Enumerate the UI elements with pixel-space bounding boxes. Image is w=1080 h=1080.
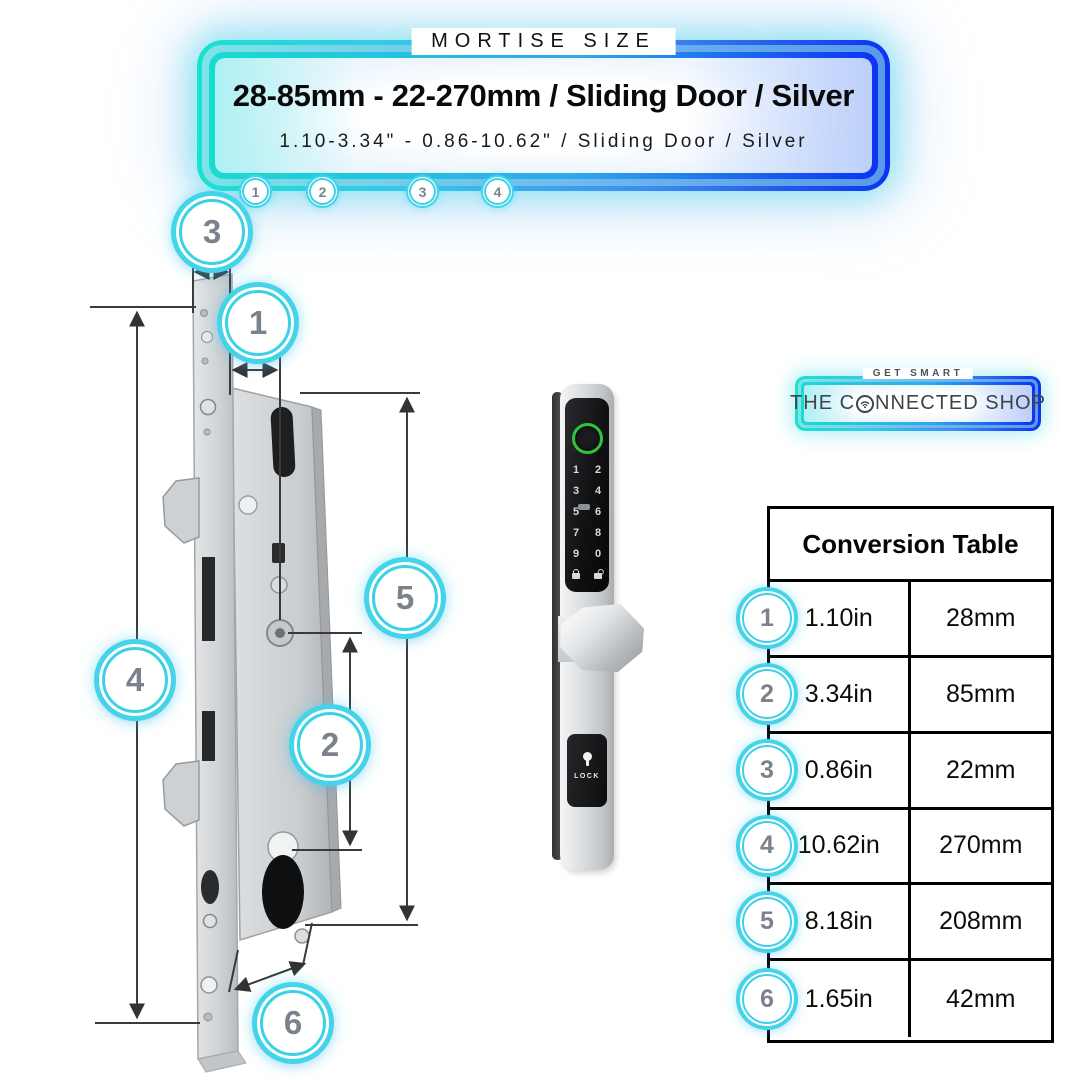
callout-6: 6 bbox=[260, 990, 326, 1056]
key-cover-panel: LOCK bbox=[567, 734, 607, 807]
keypad-icon-row bbox=[565, 568, 609, 579]
mortise-size-banner: MORTISE SIZE 28-85mm - 22-270mm / Slidin… bbox=[197, 40, 890, 191]
hook-slot-lower bbox=[202, 711, 215, 761]
stop-pin bbox=[272, 543, 285, 563]
key-3: 3 bbox=[565, 485, 587, 497]
mortise-lock-diagram: 3 1 5 4 2 6 bbox=[80, 195, 470, 1080]
callout-1: 1 bbox=[225, 290, 291, 356]
logo-frame-fill: THE CNNECTED SHOP bbox=[804, 385, 1032, 422]
mm-cell: 42mm bbox=[911, 961, 1052, 1037]
row-number-badge: 6 bbox=[742, 974, 792, 1024]
product-infographic: MORTISE SIZE 28-85mm - 22-270mm / Slidin… bbox=[0, 0, 1080, 1080]
table-row: 3 0.86in 22mm bbox=[770, 734, 1051, 810]
mm-cell: 85mm bbox=[911, 658, 1052, 731]
latch-slot bbox=[270, 406, 296, 477]
keypad-digits: 1 2 3 4 5 6 7 8 9 0 bbox=[565, 464, 609, 560]
logo-name-suffix: NNECTED SHOP bbox=[875, 392, 1046, 415]
conversion-table-rows: 1 1.10in 28mm 2 3.34in 85mm 3 0.86in 22m… bbox=[770, 582, 1051, 1037]
body-hole bbox=[239, 496, 257, 514]
row-number-badge: 2 bbox=[742, 669, 792, 719]
row-number-badge: 5 bbox=[742, 897, 792, 947]
lock-panel-label: LOCK bbox=[574, 773, 600, 780]
key-4: 4 bbox=[587, 485, 609, 497]
mm-cell: 270mm bbox=[911, 810, 1052, 883]
locked-icon bbox=[572, 573, 580, 579]
callout-5: 5 bbox=[372, 565, 438, 631]
mm-cell: 28mm bbox=[911, 582, 1052, 655]
touch-keypad: 1 2 3 4 5 6 7 8 9 0 bbox=[565, 398, 609, 592]
ok-key bbox=[578, 504, 590, 510]
hook-slot-upper bbox=[202, 557, 215, 641]
spindle-hole bbox=[275, 628, 285, 638]
banner-marker-4: 4 bbox=[484, 178, 511, 205]
logo-name: THE CNNECTED SHOP bbox=[790, 392, 1046, 415]
table-row: 5 8.18in 208mm bbox=[770, 885, 1051, 961]
banner-eyebrow: MORTISE SIZE bbox=[411, 28, 676, 55]
faceplate-slot bbox=[201, 870, 219, 904]
key-7: 7 bbox=[565, 527, 587, 539]
callout-3: 3 bbox=[179, 199, 245, 265]
banner-title: 28-85mm - 22-270mm / Sliding Door / Silv… bbox=[233, 78, 854, 114]
banner-subtitle: 1.10-3.34" - 0.86-10.62" / Sliding Door … bbox=[279, 131, 807, 153]
hook-bolt-lower bbox=[163, 761, 199, 826]
banner-marker-2: 2 bbox=[309, 178, 336, 205]
banner-content: MORTISE SIZE 28-85mm - 22-270mm / Slidin… bbox=[197, 40, 890, 191]
cylinder-hole bbox=[262, 855, 304, 929]
banner-marker-3: 3 bbox=[409, 178, 436, 205]
conversion-table: Conversion Table 1 1.10in 28mm 2 3.34in … bbox=[767, 506, 1054, 1043]
table-row: 6 1.65in 42mm bbox=[770, 961, 1051, 1037]
mm-cell: 208mm bbox=[911, 885, 1052, 958]
faceplate-screw bbox=[201, 400, 216, 415]
body-screw-2 bbox=[295, 929, 309, 943]
faceplate bbox=[193, 274, 238, 1059]
key-9: 9 bbox=[565, 548, 587, 560]
dim-6-arrow bbox=[236, 964, 304, 989]
key-2: 2 bbox=[587, 464, 609, 476]
mm-cell: 22mm bbox=[911, 734, 1052, 807]
row-number-badge: 4 bbox=[742, 821, 792, 871]
table-row: 2 3.34in 85mm bbox=[770, 658, 1051, 734]
unlocked-icon bbox=[594, 573, 602, 579]
banner-marker-1: 1 bbox=[242, 178, 269, 205]
logo-frame-mid: THE CNNECTED SHOP bbox=[798, 379, 1038, 428]
wifi-o-icon bbox=[856, 395, 874, 413]
key-0: 0 bbox=[587, 548, 609, 560]
brand-logo: THE CNNECTED SHOP GET SMART bbox=[795, 376, 1041, 431]
smart-lock-product: 1 2 3 4 5 6 7 8 9 0 L bbox=[552, 384, 647, 870]
callout-4: 4 bbox=[102, 647, 168, 713]
row-number-badge: 3 bbox=[742, 745, 792, 795]
conversion-table-title: Conversion Table bbox=[770, 509, 1051, 582]
keyhole-icon bbox=[583, 752, 592, 761]
key-6: 6 bbox=[587, 506, 609, 518]
table-row: 1 1.10in 28mm bbox=[770, 582, 1051, 658]
key-8: 8 bbox=[587, 527, 609, 539]
logo-frame-inner: THE CNNECTED SHOP bbox=[801, 382, 1035, 425]
callout-2: 2 bbox=[297, 712, 363, 778]
hook-bolt-upper bbox=[163, 478, 199, 543]
table-row: 4 10.62in 270mm bbox=[770, 810, 1051, 886]
logo-tagline: GET SMART bbox=[863, 368, 973, 379]
row-number-badge: 1 bbox=[742, 593, 792, 643]
logo-name-prefix: THE C bbox=[790, 392, 855, 415]
key-1: 1 bbox=[565, 464, 587, 476]
fingerprint-sensor bbox=[572, 423, 603, 454]
